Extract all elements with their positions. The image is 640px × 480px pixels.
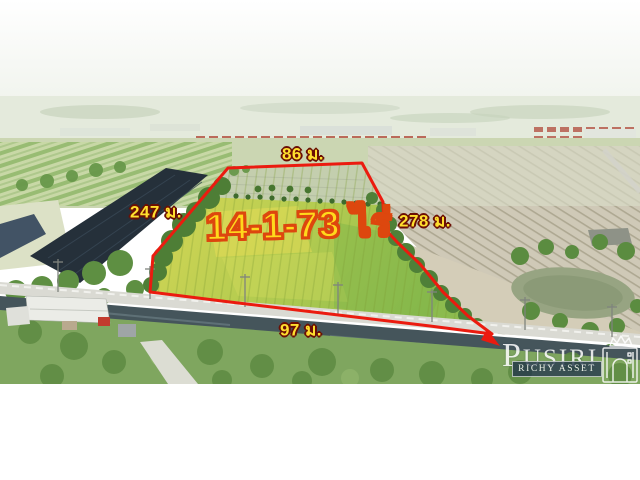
dimension-label-left: 247 ม. [130, 199, 182, 226]
dimension-label-bottom: 97 ม. [280, 317, 322, 344]
watermark-band: RICHY ASSET [512, 361, 602, 377]
dimension-label-top: 86 ม. [282, 141, 324, 168]
watermark: PUSIRI RICHY ASSET [500, 333, 640, 384]
screenshot: 86 ม. 247 ม. 278 ม. 97 ม. 14-1-73 ไร่ PU… [0, 0, 640, 480]
aerial-photo: 86 ม. 247 ม. 278 ม. 97 ม. 14-1-73 ไร่ PU… [0, 0, 640, 384]
crowned-building-icon [594, 334, 640, 384]
dimension-label-right: 278 ม. [399, 208, 451, 235]
area-label: 14-1-73 ไร่ [205, 193, 393, 257]
watermark-tagline: RICHY ASSET [518, 364, 596, 374]
